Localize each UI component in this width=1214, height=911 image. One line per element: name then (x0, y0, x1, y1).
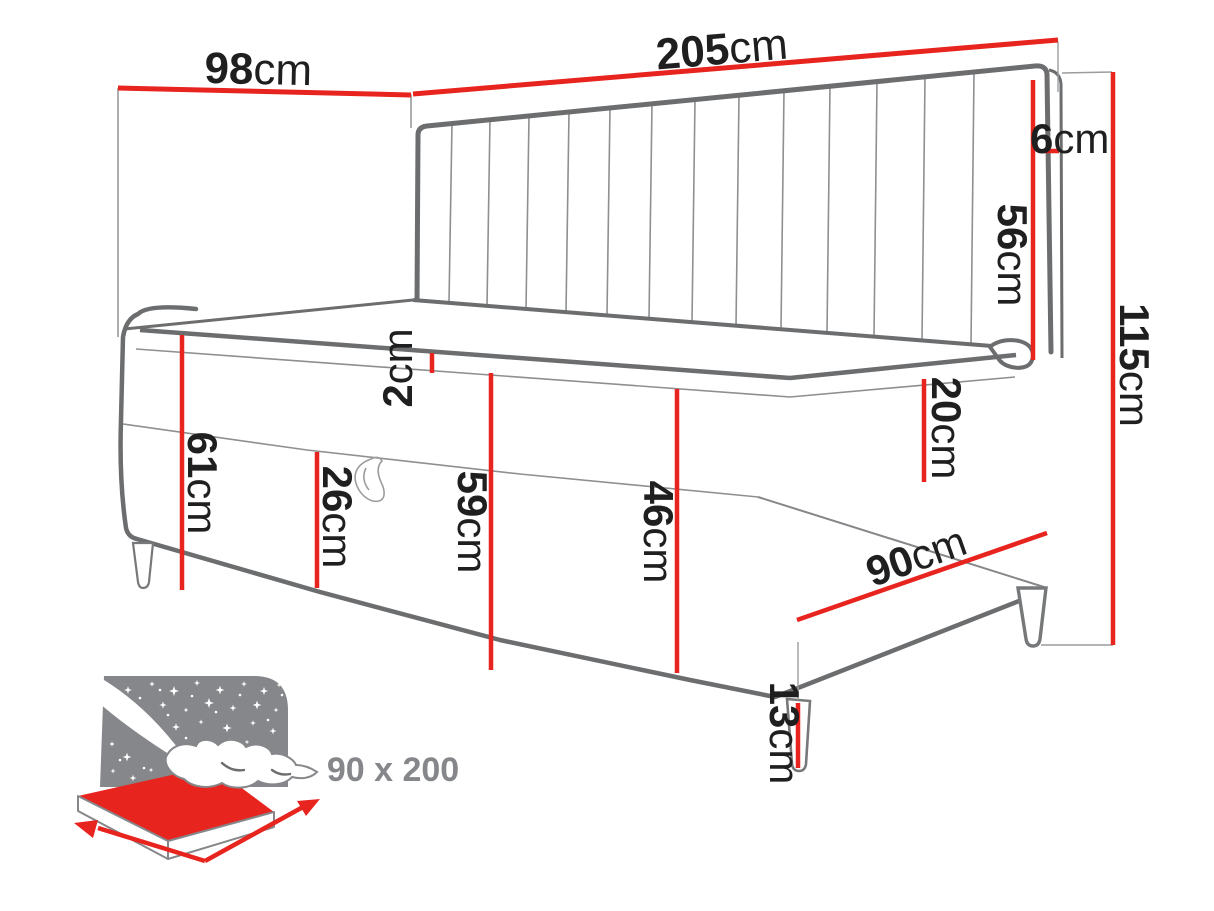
dimension-label-26: 26cm (314, 466, 361, 569)
bed-dimension-diagram: 98cm 205cm 6cm 56cm 115cm 61cm 2cm 26cm … (0, 0, 1214, 911)
size-badge: 90 x 200 (327, 751, 459, 789)
bed-size-icon: 90 x 200 (74, 676, 459, 861)
rear-right-leg (1018, 588, 1046, 646)
icon-duvet (166, 740, 317, 788)
dimension-label-56: 56cm (989, 204, 1036, 307)
dimension-label-20: 20cm (923, 377, 970, 480)
dimension-label-59: 59cm (449, 471, 496, 574)
front-left-leg (133, 543, 153, 588)
dimension-label-205: 205cm (654, 20, 790, 80)
dimension-label-98: 98cm (204, 44, 313, 95)
dimension-label-115: 115cm (1111, 303, 1158, 427)
side-wall-panel (118, 89, 411, 337)
dimension-label-6: 6cm (1030, 115, 1109, 162)
dimension-label-13: 13cm (761, 682, 808, 785)
bed-body (119, 300, 1046, 697)
dimension-label-46: 46cm (635, 481, 682, 584)
dimension-label-2: 2cm (374, 328, 421, 407)
diagram-canvas: 98cm 205cm 6cm 56cm 115cm 61cm 2cm 26cm … (0, 0, 1214, 911)
dimension-label-61: 61cm (179, 432, 226, 535)
